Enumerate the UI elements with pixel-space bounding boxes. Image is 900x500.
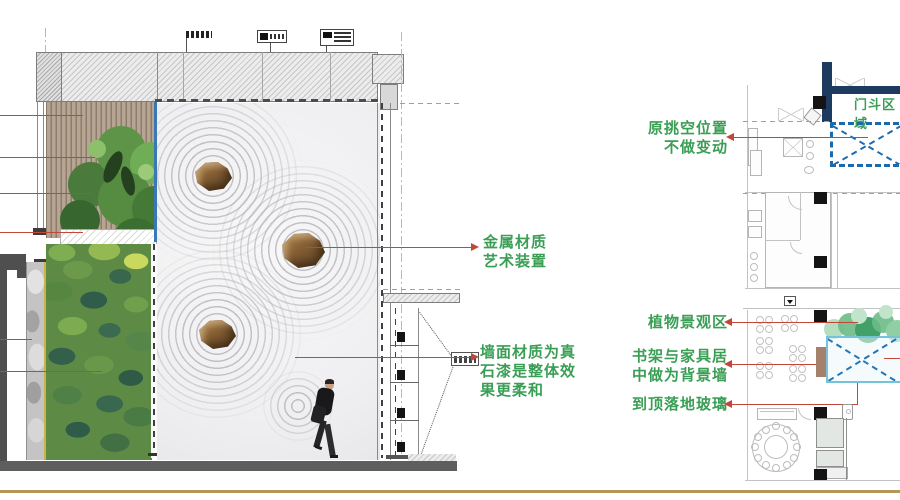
annotation-line: 书架与家具居 [624,347,728,366]
wall-cap [372,54,404,84]
centerline [45,28,46,54]
wall-line [390,103,391,460]
wall-joint [330,52,331,102]
leader-arrow-icon [471,243,479,251]
stool [806,152,814,160]
background-wall-zone [826,336,900,383]
annotation-ceiling-glass: 到顶落地玻璃 [624,395,728,414]
door-swing-symbol [778,108,804,121]
room [816,450,844,467]
annotation-line: 艺术装置 [483,252,547,271]
sideboard [757,408,797,420]
plant-pot [804,166,814,174]
chair [783,461,791,469]
table [783,138,803,157]
chair [790,433,798,441]
leader-line [305,247,471,248]
plan-wall [837,192,838,288]
leader-line [0,232,83,233]
annotation-plant-zone: 植物景观区 [628,313,728,332]
table-cluster [756,337,773,354]
cross-diagonal [827,338,900,383]
desk [748,226,762,238]
wall-section-band [36,52,378,102]
mullion-block [397,332,405,342]
window-frame-line [37,102,38,229]
leader-line [733,137,868,138]
plan-line [743,308,900,309]
chair [750,252,758,260]
leader-line [884,358,900,359]
leader-line [0,193,93,194]
annotation-line: 中做为背景墙 [624,366,728,385]
plant-blob [879,305,893,319]
design-presentation-slide: 金属材质 艺术装置 墙面材质为真 石漆是整体效 果更柔和 门斗区域 原挑空位置 … [0,0,900,500]
slab-hatch [383,293,460,303]
wall-joint [157,52,158,102]
person-figure [306,376,348,460]
foliage-highlight [138,164,154,180]
tag-mark [260,33,268,40]
plan-line [745,480,900,481]
wall-joint [183,52,184,102]
mullion-rung [390,420,419,421]
door-arc [798,408,811,420]
foliage-highlight [88,140,106,158]
chair [750,263,758,271]
column [814,256,827,268]
chair [754,433,762,441]
dark-wall [0,270,7,462]
centerline [401,32,402,458]
mullion-block [397,408,405,418]
sand-top-dashed-edge [155,99,380,102]
person-leg [324,424,335,457]
stool [806,140,814,148]
ground-bar [0,461,457,471]
plan-wall [831,192,832,288]
annotation-line: 到顶落地玻璃 [624,395,728,414]
table-cluster [781,315,798,332]
callout-leader [186,38,187,52]
cabinet [750,150,762,176]
leader-line [0,157,95,158]
dark-wall [17,270,26,278]
leader-line [731,322,858,323]
leader-arrow-icon [471,353,479,361]
bookshelf [816,347,826,377]
plan-line [745,288,900,289]
dashed-wall-line [381,103,383,458]
column [813,96,826,109]
tilted-furniture [803,107,821,125]
chair [762,426,770,434]
fixture-dot [846,409,851,414]
annotation-line: 原挑空位置 [628,119,728,138]
chair [790,454,798,462]
table-cluster [789,365,806,382]
annotation-line: 不做变动 [628,138,728,157]
annotation-line: 植物景观区 [628,313,728,332]
annotation-bookshelf-wall: 书架与家具居 中做为背景墙 [624,347,728,385]
column [814,469,827,480]
triangle-icon [787,300,793,304]
plan-dashed-line [743,121,830,122]
annotation-line: 果更柔和 [480,381,576,400]
table-cluster [789,345,806,362]
leader-line [731,364,816,365]
navy-wall [822,86,900,94]
chair [762,461,770,469]
wall-joint [262,52,263,102]
annotation-metal-art: 金属材质 艺术装置 [483,233,547,271]
plan-wall [846,418,847,480]
desk [748,210,762,222]
tag-text-blur [334,32,351,43]
annotation-line: 墙面材质为真 [480,343,576,362]
callout-tag [257,30,287,43]
tag-text-blur [270,34,284,39]
round-table-inner [764,435,788,459]
plan-boundary [747,310,748,480]
mullion-rail [418,308,419,458]
dark-wall [0,254,26,270]
chair [751,443,759,451]
mullion-rung [390,382,419,383]
marker-icon [784,296,796,306]
chair [754,454,762,462]
table-cluster [756,316,773,333]
ground-hatch [408,454,456,461]
callout-tag [186,31,212,38]
moss-garden [46,244,152,460]
chair [783,426,791,434]
leader-line [0,339,32,340]
callout-leader [270,43,271,52]
stone-strip [26,262,44,460]
column [814,192,827,204]
annotation-line: 金属材质 [483,233,547,252]
tag-mark [323,32,332,38]
leader-line [0,371,102,372]
detail-dotted-line [420,363,455,456]
zen-sand-garden [157,103,380,460]
dashed-boundary [153,244,155,454]
leader-line [857,383,858,404]
chair [772,422,780,430]
leader-line [731,404,858,405]
sideboard-line [760,411,794,412]
void-marked-zone [830,122,900,167]
mullion-block [397,370,405,380]
plan-wall [765,240,800,241]
chair [750,274,758,282]
annotation-line: 石漆是整体效 [480,362,576,381]
reference-dashed-line [383,289,462,290]
plan-boundary [747,85,748,288]
annotation-wall-paint: 墙面材质为真 石漆是整体效 果更柔和 [480,343,576,400]
leader-line [295,357,471,358]
mullion-rung [390,345,419,346]
mullion-dashed [395,308,396,458]
person-hair [325,379,334,384]
chair [793,443,801,451]
person-foot [330,455,338,458]
gold-edge-line [44,262,46,460]
gold-divider [0,490,900,493]
annotation-original-void: 原挑空位置 不做变动 [628,119,728,157]
wall-line [377,103,378,460]
callout-tag [320,29,354,46]
room [816,418,844,448]
person-foot [315,445,323,450]
leader-line [0,115,83,116]
window-frame-line [43,102,44,229]
chair [772,464,780,472]
reference-dashed-line [400,103,462,104]
detail-dotted-line [419,312,453,359]
mullion-block [397,442,405,452]
wall-column [36,52,62,102]
